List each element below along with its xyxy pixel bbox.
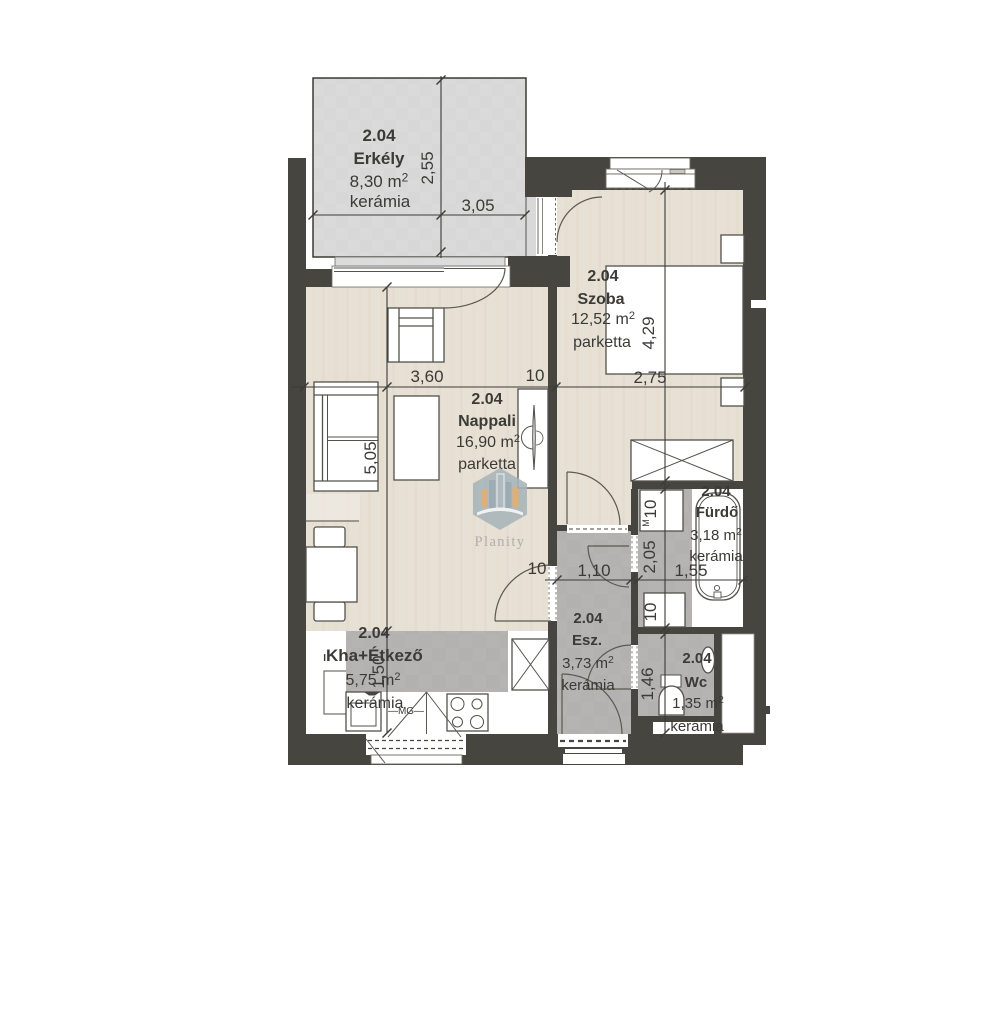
svg-text:3,73 m2: 3,73 m2 xyxy=(562,654,614,672)
svg-text:2.04: 2.04 xyxy=(471,391,502,408)
svg-text:parketta: parketta xyxy=(573,334,631,351)
svg-text:Planity: Planity xyxy=(475,534,526,550)
svg-text:Szoba: Szoba xyxy=(577,291,624,308)
svg-text:1,46: 1,46 xyxy=(638,667,657,700)
svg-text:kerámia: kerámia xyxy=(670,718,724,735)
svg-text:Esz.: Esz. xyxy=(572,632,602,649)
svg-text:2.04: 2.04 xyxy=(358,625,389,642)
svg-text:2.04: 2.04 xyxy=(587,268,618,285)
svg-text:10: 10 xyxy=(641,500,660,519)
svg-text:3,60: 3,60 xyxy=(410,367,443,386)
svg-text:10: 10 xyxy=(641,603,660,622)
svg-text:kerámia: kerámia xyxy=(561,677,615,694)
svg-text:1,35 m2: 1,35 m2 xyxy=(672,694,724,712)
svg-text:8,30 m2: 8,30 m2 xyxy=(350,171,409,192)
svg-text:kerámia: kerámia xyxy=(350,192,411,211)
svg-text:16,90 m2: 16,90 m2 xyxy=(456,433,520,451)
svg-text:10: 10 xyxy=(528,559,547,578)
svg-text:2,05: 2,05 xyxy=(640,540,659,573)
svg-text:2,55: 2,55 xyxy=(418,151,437,184)
svg-text:2.04: 2.04 xyxy=(573,610,603,627)
svg-text:Nappali: Nappali xyxy=(458,413,516,430)
svg-text:2.04: 2.04 xyxy=(701,483,731,500)
svg-text:4,29: 4,29 xyxy=(639,316,658,349)
svg-text:12,52 m2: 12,52 m2 xyxy=(571,310,635,328)
svg-text:Fürdő: Fürdő xyxy=(696,504,739,521)
svg-text:Wc: Wc xyxy=(685,674,708,691)
svg-text:1,50: 1,50 xyxy=(369,655,388,688)
svg-text:2.04: 2.04 xyxy=(362,126,396,145)
svg-text:3,18 m2: 3,18 m2 xyxy=(690,526,742,544)
svg-text:Erkély: Erkély xyxy=(353,149,405,168)
svg-text:M: M xyxy=(641,519,651,527)
svg-text:—MG—: —MG— xyxy=(388,706,424,717)
svg-text:parketta: parketta xyxy=(458,456,516,473)
svg-text:1,10: 1,10 xyxy=(577,561,610,580)
svg-text:2,75: 2,75 xyxy=(633,368,666,387)
svg-text:2.04: 2.04 xyxy=(682,650,712,667)
svg-text:1,55: 1,55 xyxy=(674,561,707,580)
svg-text:3,05: 3,05 xyxy=(461,196,494,215)
svg-text:10: 10 xyxy=(526,366,545,385)
svg-text:5,05: 5,05 xyxy=(361,441,380,474)
